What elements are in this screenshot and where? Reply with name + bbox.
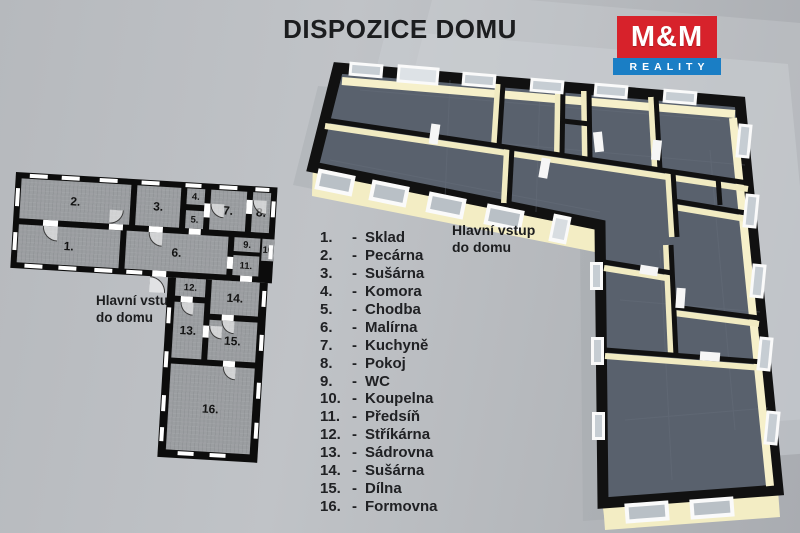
legend-row: 14.-Sušárna — [320, 462, 470, 480]
legend-row: 2.-Pecárna — [320, 247, 470, 265]
logo-bottom-text: REALITY — [625, 61, 710, 73]
room-5: 5. — [185, 210, 204, 229]
legend-row: 12.-Stříkárna — [320, 426, 470, 444]
room-3: 3. — [135, 185, 181, 228]
room-1: 1. — [17, 224, 121, 268]
legend-row: 15.-Dílna — [320, 479, 470, 497]
mm-reality-logo: M&M REALITY — [613, 16, 721, 75]
legend-row: 10.-Koupelna — [320, 390, 470, 408]
plan-2d-wing-horizontal: 2. 3. 4. 5. 7. 8. 1. 6. 9. 10 11. — [10, 172, 277, 283]
logo-top-text: M&M — [631, 21, 703, 54]
logo-top-badge: M&M — [617, 16, 717, 58]
entrance-door-arc — [149, 276, 166, 293]
room-legend: 1.-Sklad 2.-Pecárna 3.-Sušárna 4.-Komora… — [320, 229, 470, 515]
room-12: 12. — [175, 278, 206, 298]
legend-row: 8.-Pokoj — [320, 354, 470, 372]
legend-row: 16.-Formovna — [320, 497, 470, 515]
legend-row: 6.-Malírna — [320, 318, 470, 336]
room-11: 11. — [232, 255, 259, 277]
legend-row: 1.-Sklad — [320, 229, 470, 247]
plan-2d: 2. 3. 4. 5. 7. 8. 1. 6. 9. 10 11. — [0, 172, 282, 469]
room-14: 14. — [210, 280, 260, 317]
legend-row: 5.-Chodba — [320, 301, 470, 319]
logo-bottom-badge: REALITY — [613, 58, 721, 75]
legend-row: 4.-Komora — [320, 283, 470, 301]
room-9: 9. — [234, 237, 261, 253]
entrance-label-3d: Hlavní vstup do domu — [452, 222, 535, 256]
legend-row: 13.-Sádrovna — [320, 444, 470, 462]
legend-row: 9.-WC — [320, 372, 470, 390]
room-4: 4. — [186, 188, 205, 205]
room-6: 6. — [124, 231, 228, 275]
legend-row: 11.-Předsíň — [320, 408, 470, 426]
room-16: 16. — [166, 364, 255, 455]
plan-2d-wing-vertical: 12. 14. 13. 15. 16. — [157, 277, 267, 463]
legend-row: 3.-Sušárna — [320, 265, 470, 283]
legend-row: 7.-Kuchyně — [320, 336, 470, 354]
